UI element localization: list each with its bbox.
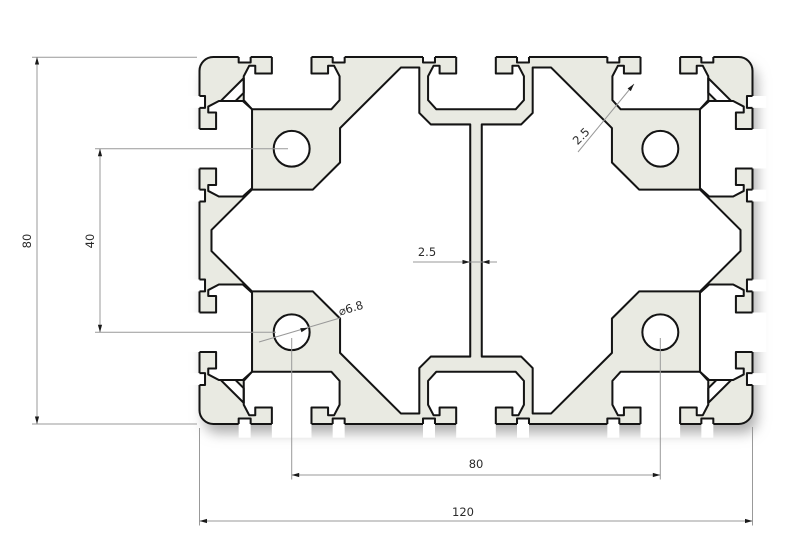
dim-web-thickness-label: 2.5 [418, 245, 436, 259]
profile-cross-section [186, 43, 767, 438]
drawing-svg: 8040801202.52.5⌀6.8 [0, 0, 804, 557]
dim-hole-spacing-v-label: 40 [83, 234, 97, 249]
technical-drawing-canvas: 8040801202.52.5⌀6.8 [0, 0, 804, 557]
profile-body [200, 57, 753, 424]
dim-overall-height-label: 80 [20, 234, 34, 249]
dim-hole-spacing-h-label: 80 [469, 457, 484, 471]
dim-overall-width-label: 120 [452, 505, 474, 519]
